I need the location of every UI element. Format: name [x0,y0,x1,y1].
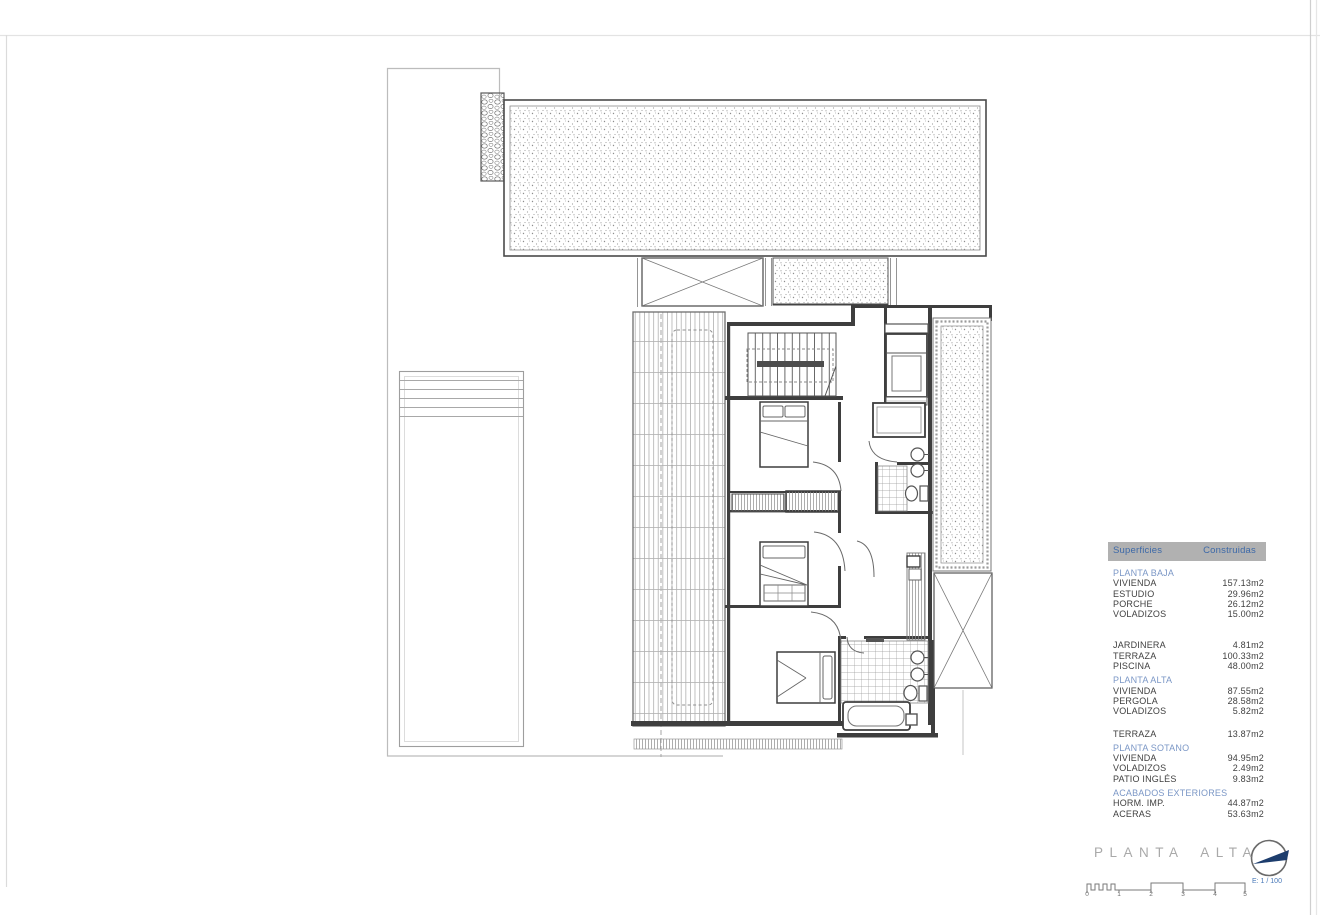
section-planta-baja: PLANTA BAJA [1108,568,1266,578]
table-row: VIVIENDA94.95m2 [1108,753,1266,763]
plan-sheet: Superficies Construidas PLANTA BAJA VIVI… [0,0,1320,915]
staircase [747,333,836,396]
row-label: ESTUDIO [1113,589,1154,599]
row-label: HORM. IMP. [1113,798,1165,808]
row-value: 53.63m2 [1228,809,1264,819]
scale-tick: 2 [1145,891,1157,898]
bed-2 [760,542,808,606]
table-row: VOLADIZOS5.82m2 [1108,706,1266,716]
row-value: 100.33m2 [1222,651,1264,661]
roof-terrace [504,100,986,256]
table-row: TERRAZA13.87m2 [1108,729,1266,739]
section-label: PLANTA BAJA [1113,568,1174,578]
double-height-void [934,573,992,688]
table-row: VOLADIZOS2.49m2 [1108,763,1266,773]
jardinera-strip [933,318,991,571]
table-row: HORM. IMP.44.87m2 [1108,798,1266,808]
table-row: PATIO INGLÉS9.83m2 [1108,774,1266,784]
col-built: Construidas [1203,546,1256,556]
row-label: VIVIENDA [1113,686,1157,696]
row-value: 15.00m2 [1228,609,1264,619]
row-label: VOLADIZOS [1113,763,1166,773]
row-label: VIVIENDA [1113,753,1157,763]
row-label: VOLADIZOS [1113,706,1166,716]
row-label: PISCINA [1113,661,1150,671]
row-value: 44.87m2 [1228,798,1264,808]
section-acabados-exteriores: ACABADOS EXTERIORES [1108,788,1266,798]
bathroom-2 [841,638,929,730]
row-value: 28.58m2 [1228,696,1264,706]
row-value: 26.12m2 [1228,599,1264,609]
row-value: 4.81m2 [1233,640,1264,650]
table-row: VIVIENDA157.13m2 [1108,578,1266,588]
dresser [873,403,925,437]
plan-title: PLANTA ALTA [1094,845,1258,860]
scale-tick: 1 [1113,891,1125,898]
swimming-pool [400,372,524,747]
scale-label: E: 1 / 100 [1252,878,1282,885]
row-label: TERRAZA [1113,651,1156,661]
row-value: 9.83m2 [1233,774,1264,784]
row-label: PORCHE [1113,599,1153,609]
row-label: TERRAZA [1113,729,1156,739]
table-row: ACERAS53.63m2 [1108,809,1266,819]
section-planta-alta: PLANTA ALTA [1108,675,1266,685]
row-value: 94.95m2 [1228,753,1264,763]
section-label: PLANTA ALTA [1113,675,1172,685]
bed-3 [777,652,835,703]
scale-tick: 0 [1081,891,1093,898]
row-label: JARDINERA [1113,640,1166,650]
row-value: 87.55m2 [1228,686,1264,696]
section-label: PLANTA SOTANO [1113,743,1189,753]
bathroom-1 [878,448,929,511]
table-row: PISCINA48.00m2 [1108,661,1266,671]
wardrobe-band [732,491,840,512]
section-planta-sotano: PLANTA SOTANO [1108,743,1266,753]
section-label: ACABADOS EXTERIORES [1113,788,1227,798]
row-value: 157.13m2 [1222,578,1264,588]
scale-bar [1087,883,1245,893]
bed-1 [760,402,808,467]
row-value: 5.82m2 [1233,706,1264,716]
closet [885,324,928,405]
pergola [633,312,725,726]
scale-tick: 4 [1209,891,1221,898]
areas-table: Superficies Construidas PLANTA BAJA VIVI… [1108,542,1266,819]
row-value: 48.00m2 [1228,661,1264,671]
table-row: PORCHE26.12m2 [1108,599,1266,609]
table-row: VOLADIZOS15.00m2 [1108,609,1266,619]
table-row: ESTUDIO29.96m2 [1108,589,1266,599]
pebble-strip [481,93,504,181]
gravel-strip [773,258,888,305]
table-header: Superficies Construidas [1108,542,1266,561]
scale-tick: 3 [1177,891,1189,898]
table-row: PERGOLA28.58m2 [1108,696,1266,706]
row-label: PATIO INGLÉS [1113,774,1177,784]
louver-strip [907,553,925,640]
row-value: 13.87m2 [1228,729,1264,739]
row-label: ACERAS [1113,809,1151,819]
row-value: 29.96m2 [1228,589,1264,599]
table-row: JARDINERA4.81m2 [1108,640,1266,650]
row-label: PERGOLA [1113,696,1158,706]
table-row: TERRAZA100.33m2 [1108,651,1266,661]
row-label: VOLADIZOS [1113,609,1166,619]
table-row: VIVIENDA87.55m2 [1108,686,1266,696]
row-label: VIVIENDA [1113,578,1157,588]
col-surfaces: Superficies [1113,546,1162,556]
row-value: 2.49m2 [1233,763,1264,773]
overhang-band [634,739,842,749]
scale-tick: 5 [1239,891,1251,898]
